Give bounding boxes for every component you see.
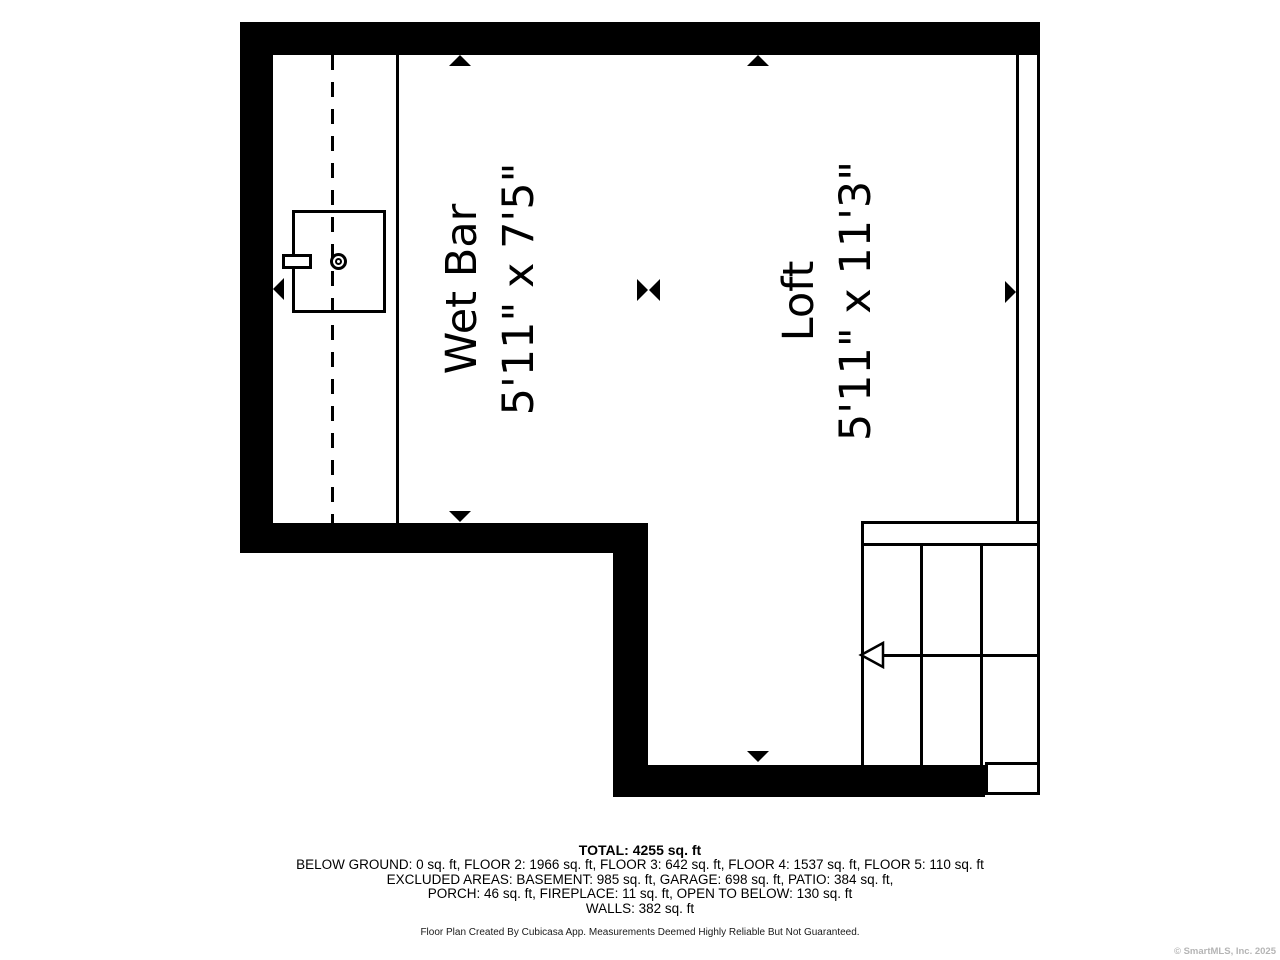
stair-tread-top-line: [861, 543, 1040, 546]
area-summary: TOTAL: 4255 sq. ft BELOW GROUND: 0 sq. f…: [0, 843, 1280, 916]
stair-direction-arrow-icon: [858, 641, 886, 669]
dimension-arrow-right-wetbar-icon: [637, 279, 648, 301]
wet-bar-alcove-divider-line: [396, 55, 399, 523]
room-dimensions-wet-bar: 5'11" x 7'5": [491, 163, 548, 416]
stair-enclosure-top-line: [861, 521, 1040, 524]
sink-faucet-icon: [282, 254, 312, 269]
floors-area-line: BELOW GROUND: 0 sq. ft, FLOOR 2: 1966 sq…: [0, 858, 1280, 873]
room-name-loft: Loft: [771, 161, 828, 441]
total-area-line: TOTAL: 4255 sq. ft: [0, 843, 1280, 858]
dimension-arrow-up-loft-icon: [747, 55, 769, 66]
disclaimer-text: Floor Plan Created By Cubicasa App. Meas…: [0, 927, 1280, 938]
dimension-arrow-left-loft-icon: [649, 279, 660, 301]
excluded-areas-line-1: EXCLUDED AREAS: BASEMENT: 985 sq. ft, GA…: [0, 873, 1280, 888]
floor-plan-canvas: Wet Bar 5'11" x 7'5" Loft 5'11" x 11'3" …: [0, 0, 1280, 960]
room-name-wet-bar: Wet Bar: [434, 163, 491, 416]
wall-top: [240, 22, 1040, 55]
excluded-areas-line-2: PORCH: 46 sq. ft, FIREPLACE: 11 sq. ft, …: [0, 887, 1280, 902]
wall-bottom-upper-section: [240, 523, 648, 553]
dimension-arrow-down-loft-icon: [747, 751, 769, 762]
wall-left: [240, 22, 273, 553]
dimension-arrow-right-loft-icon: [1005, 281, 1016, 303]
stair-walk-line: [862, 654, 1040, 657]
room-dimensions-loft: 5'11" x 11'3": [828, 161, 885, 441]
room-label-wet-bar: Wet Bar 5'11" x 7'5": [434, 163, 548, 416]
sink-drain-inner-icon: [335, 258, 342, 265]
room-label-loft: Loft 5'11" x 11'3": [771, 161, 885, 441]
dashed-counter-line-horizontal: [273, 52, 333, 55]
right-outer-boundary-line: [1037, 55, 1040, 795]
open-to-below-box: [985, 762, 1040, 795]
wall-middle-vertical: [613, 523, 648, 797]
dimension-arrow-left-wetbar-icon: [273, 278, 284, 300]
dimension-arrow-down-wetbar-icon: [449, 511, 471, 522]
walls-area-line: WALLS: 382 sq. ft: [0, 902, 1280, 917]
wall-bottom-lower-section: [613, 765, 985, 797]
copyright-text: © SmartMLS, Inc. 2025: [1174, 946, 1276, 957]
dimension-arrow-up-wetbar-icon: [449, 55, 471, 66]
loft-right-railing-line: [1016, 55, 1019, 523]
